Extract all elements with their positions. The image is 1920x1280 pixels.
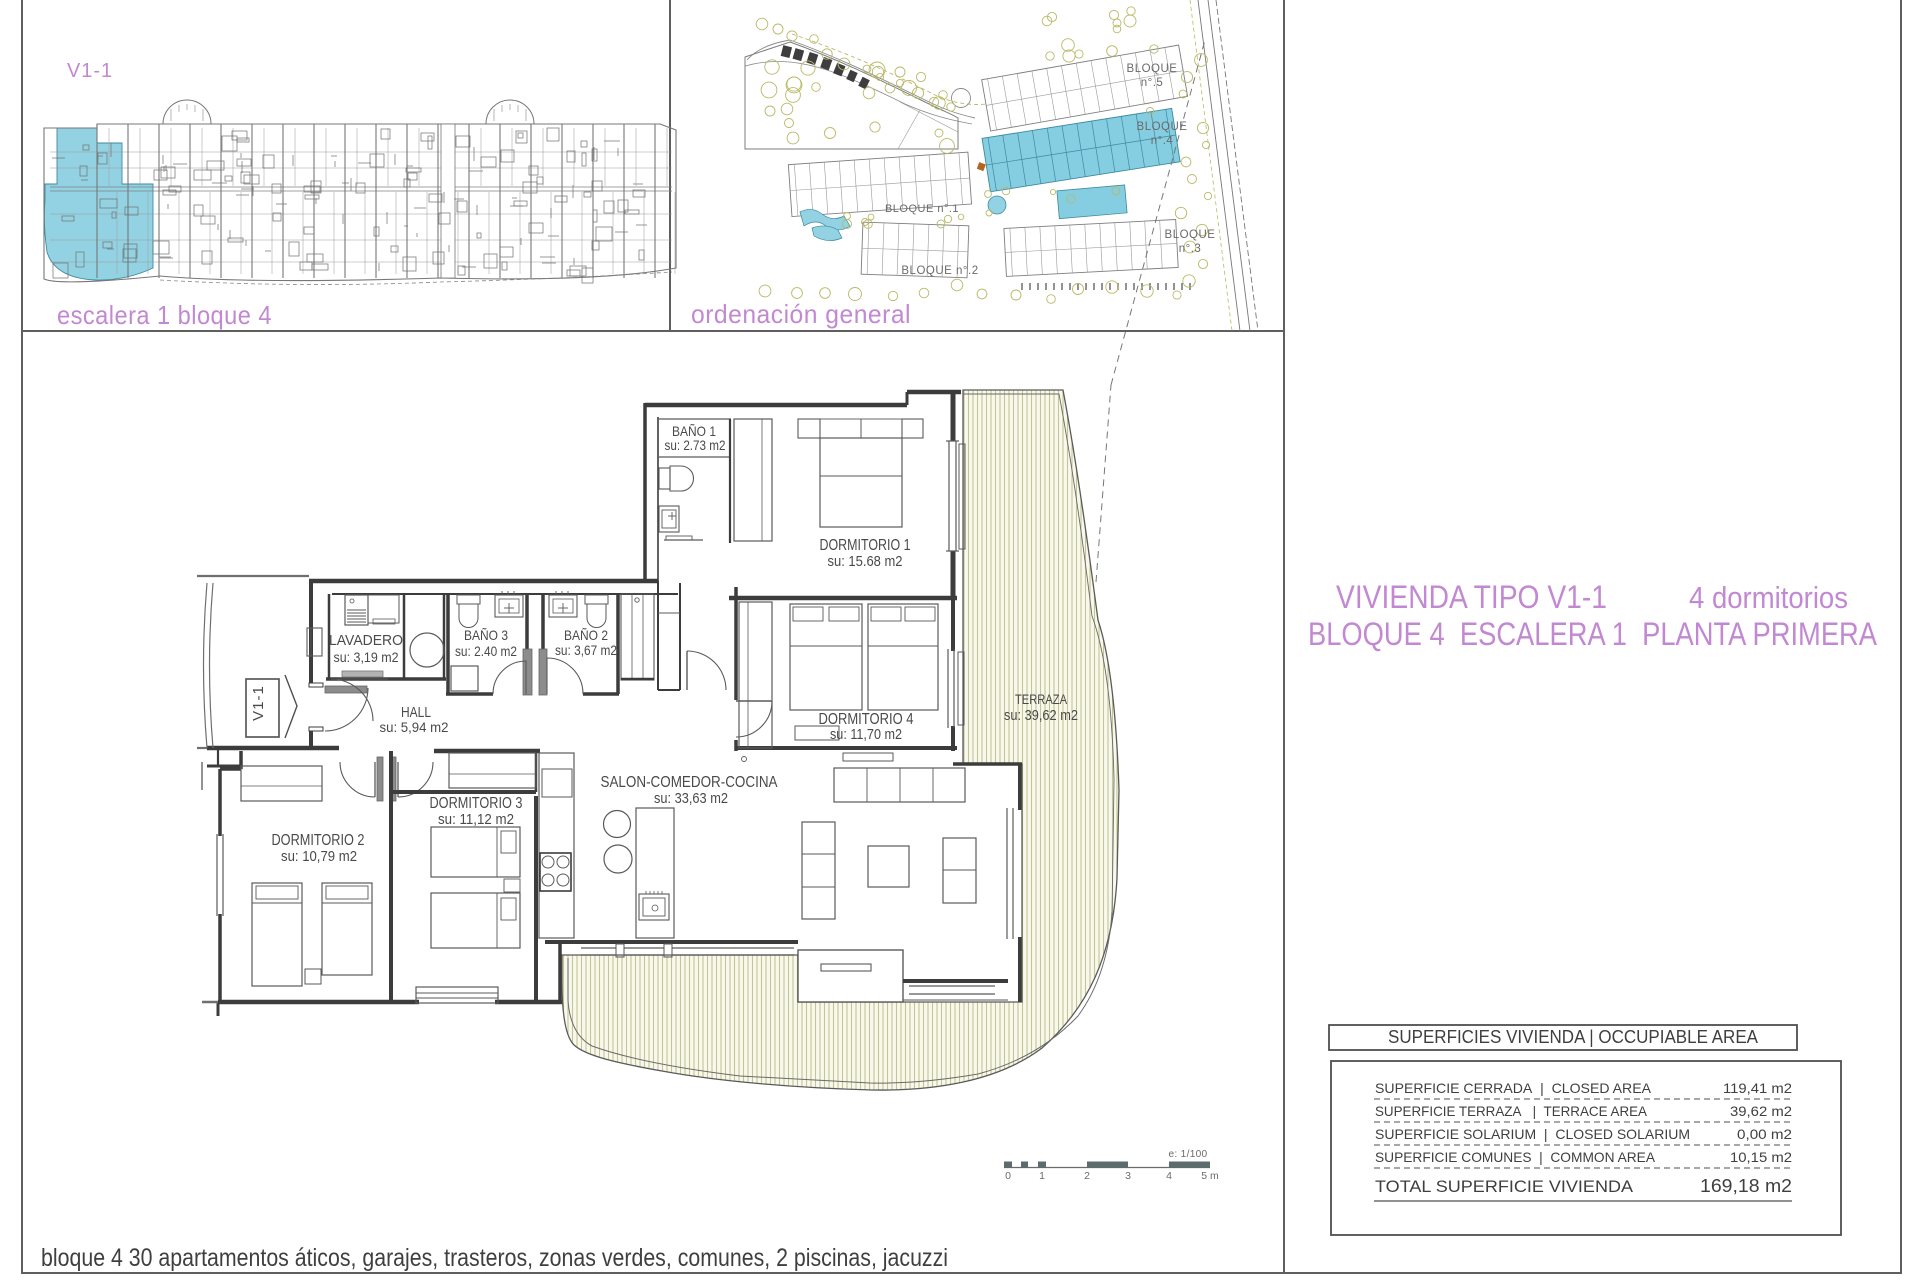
svg-text:2: 2	[1084, 1170, 1090, 1182]
svg-text:BLOQUE: BLOQUE	[1127, 63, 1178, 75]
svg-text:su: 33,63 m2: su: 33,63 m2	[654, 790, 728, 807]
svg-text:bloque 4 30 apartamentos ático: bloque 4 30 apartamentos áticos, garajes…	[41, 1244, 948, 1272]
svg-text:39,62 m2: 39,62 m2	[1730, 1103, 1792, 1119]
svg-text:DORMITORIO 2: DORMITORIO 2	[272, 832, 365, 849]
svg-text:5 m: 5 m	[1201, 1170, 1219, 1182]
svg-text:DORMITORIO 1: DORMITORIO 1	[820, 537, 911, 554]
svg-text:su: 2.73 m2: su: 2.73 m2	[665, 437, 726, 453]
svg-text:BAÑO 3: BAÑO 3	[464, 627, 508, 643]
svg-text:BLOQUE n°.2: BLOQUE n°.2	[901, 265, 978, 277]
svg-text:V1-1: V1-1	[250, 685, 267, 721]
svg-text:n°.5: n°.5	[1141, 77, 1164, 89]
svg-text:119,41 m2: 119,41 m2	[1723, 1080, 1792, 1096]
svg-text:VIVIENDA TIPO V1-1: VIVIENDA TIPO V1-1	[1336, 579, 1607, 615]
svg-text:TERRAZA: TERRAZA	[1015, 691, 1068, 707]
svg-text:V1-1: V1-1	[67, 60, 113, 82]
svg-text:BLOQUE 4 ESCALERA 1 PLANTA P: BLOQUE 4 ESCALERA 1 PLANTA PRIMERA	[1308, 616, 1878, 652]
svg-text:e: 1/100: e: 1/100	[1169, 1148, 1208, 1160]
svg-text:BLOQUE: BLOQUE	[1137, 121, 1188, 133]
svg-text:0: 0	[1005, 1170, 1011, 1182]
svg-text:1: 1	[1039, 1170, 1045, 1182]
svg-text:su: 3,67 m2: su: 3,67 m2	[555, 642, 617, 658]
svg-text:TOTAL SUPERFICIE VIVIENDA: TOTAL SUPERFICIE VIVIENDA	[1375, 1177, 1634, 1196]
svg-text:su: 5,94 m2: su: 5,94 m2	[380, 719, 449, 735]
svg-text:su: 11,70 m2: su: 11,70 m2	[830, 726, 902, 743]
svg-text:SALON-COMEDOR-COCINA: SALON-COMEDOR-COCINA	[601, 774, 778, 791]
svg-text:SUPERFICIE CERRADA | CLOSED: SUPERFICIE CERRADA | CLOSED AREA	[1375, 1080, 1652, 1096]
svg-text:SUPERFICIES VIVIENDA | OCCUPIA: SUPERFICIES VIVIENDA | OCCUPIABLE AREA	[1388, 1027, 1758, 1047]
svg-text:169,18 m2: 169,18 m2	[1700, 1176, 1792, 1196]
svg-text:BLOQUE n°.1: BLOQUE n°.1	[885, 203, 959, 215]
svg-text:su: 39,62 m2: su: 39,62 m2	[1004, 707, 1078, 724]
svg-text:n°.4: n°.4	[1151, 135, 1174, 147]
svg-text:escalera 1 bloque 4: escalera 1 bloque 4	[57, 300, 272, 330]
svg-text:SUPERFICIE COMUNES | COMMON: SUPERFICIE COMUNES | COMMON AREA	[1375, 1149, 1656, 1165]
svg-text:BLOQUE: BLOQUE	[1165, 229, 1216, 241]
svg-text:SUPERFICIE TERRAZA | TERRAC: SUPERFICIE TERRAZA | TERRACE AREA	[1375, 1103, 1648, 1119]
svg-text:su: 11,12 m2: su: 11,12 m2	[438, 811, 514, 828]
svg-text:su: 3,19 m2: su: 3,19 m2	[334, 649, 399, 665]
svg-text:4: 4	[1166, 1170, 1172, 1182]
svg-text:su: 10,79 m2: su: 10,79 m2	[281, 848, 357, 865]
svg-text:DORMITORIO 3: DORMITORIO 3	[430, 795, 523, 812]
svg-text:n°.3: n°.3	[1179, 243, 1202, 255]
svg-text:3: 3	[1125, 1170, 1131, 1182]
svg-text:ordenación general: ordenación general	[691, 299, 911, 329]
svg-text:10,15 m2: 10,15 m2	[1730, 1149, 1792, 1165]
svg-text:su: 15.68 m2: su: 15.68 m2	[828, 553, 903, 570]
svg-text:SUPERFICIE SOLARIUM | CLOSED: SUPERFICIE SOLARIUM | CLOSED SOLARIUM	[1375, 1126, 1690, 1142]
svg-text:BAÑO 2: BAÑO 2	[564, 627, 608, 643]
svg-text:0,00 m2: 0,00 m2	[1737, 1126, 1792, 1142]
svg-text:4 dormitorios: 4 dormitorios	[1689, 580, 1848, 615]
svg-text:su: 2.40 m2: su: 2.40 m2	[455, 643, 517, 659]
svg-text:LAVADERO: LAVADERO	[329, 632, 403, 649]
